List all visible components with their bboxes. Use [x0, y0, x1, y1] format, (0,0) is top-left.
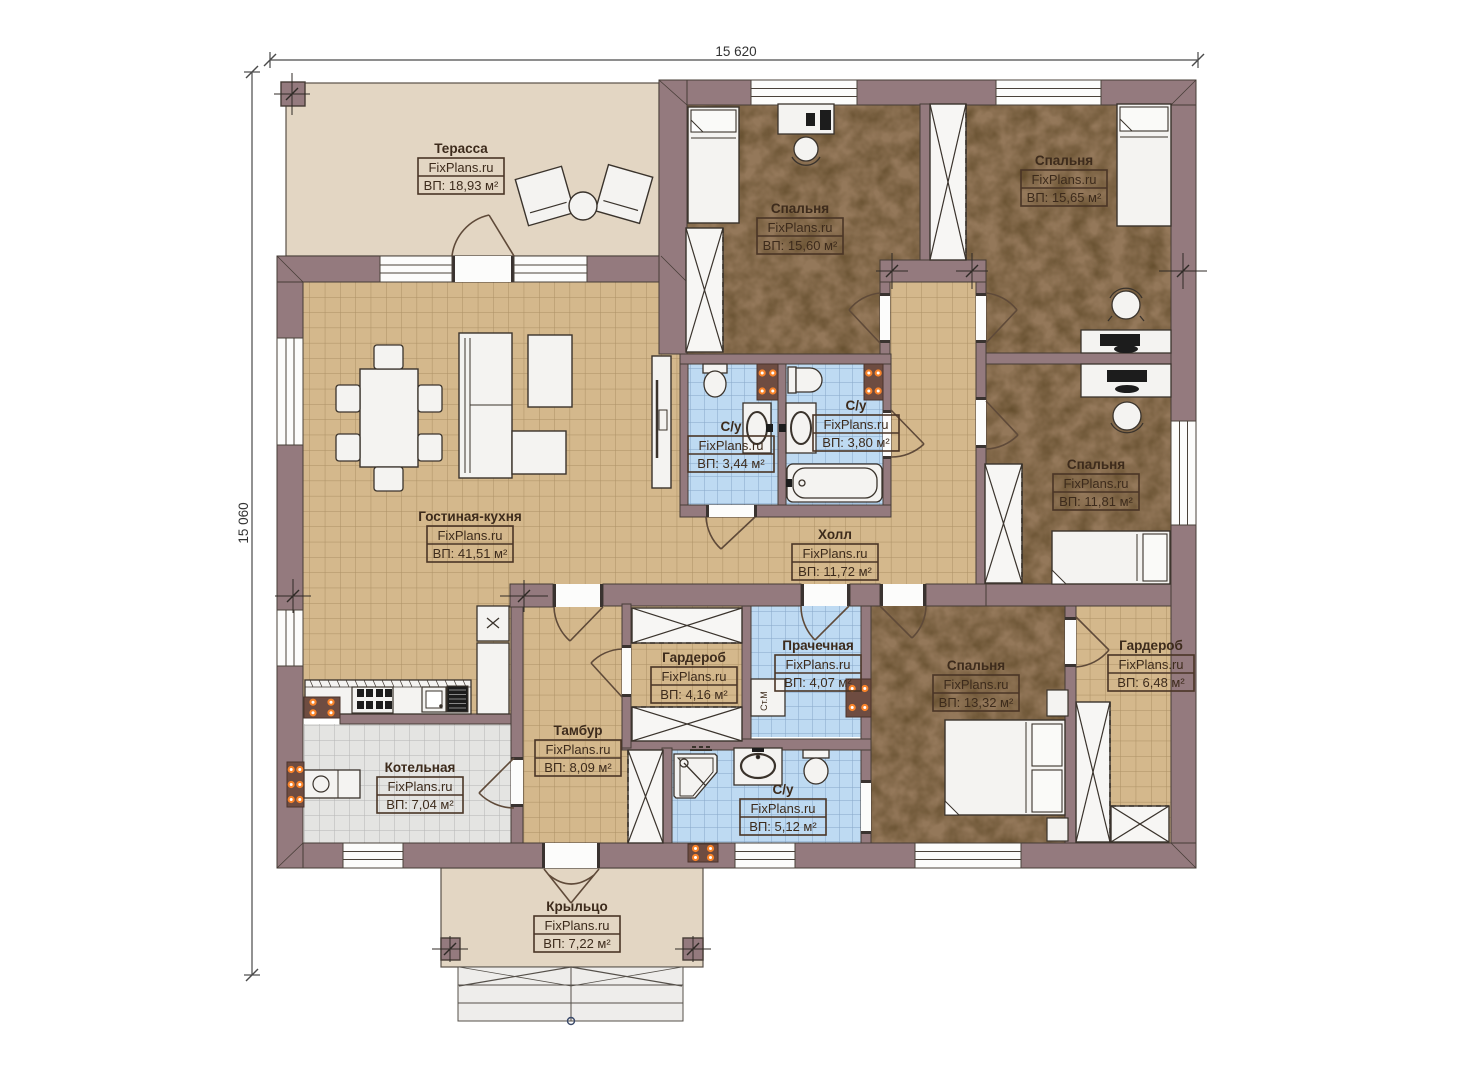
svg-text:ВП: 3,80 м²: ВП: 3,80 м² — [822, 435, 890, 450]
svg-text:ВП: 4,16 м²: ВП: 4,16 м² — [660, 687, 728, 702]
svg-text:FixPlans.ru: FixPlans.ru — [545, 742, 610, 757]
svg-text:FixPlans.ru: FixPlans.ru — [428, 160, 493, 175]
svg-text:ВП: 8,09 м²: ВП: 8,09 м² — [544, 760, 612, 775]
svg-text:Холл: Холл — [818, 527, 852, 542]
svg-text:ВП: 11,72 м²: ВП: 11,72 м² — [798, 564, 872, 579]
svg-text:FixPlans.ru: FixPlans.ru — [785, 657, 850, 672]
svg-text:FixPlans.ru: FixPlans.ru — [437, 528, 502, 543]
svg-text:ВП: 41,51 м²: ВП: 41,51 м² — [433, 546, 508, 561]
svg-text:15 620: 15 620 — [715, 44, 756, 59]
svg-text:ВП: 13,32 м²: ВП: 13,32 м² — [939, 695, 1014, 710]
svg-text:Крыльцо: Крыльцо — [546, 899, 607, 914]
svg-text:ВП: 4,07 м²: ВП: 4,07 м² — [784, 675, 852, 690]
svg-text:FixPlans.ru: FixPlans.ru — [698, 438, 763, 453]
svg-text:FixPlans.ru: FixPlans.ru — [387, 779, 452, 794]
svg-text:ВП: 11,81 м²: ВП: 11,81 м² — [1059, 494, 1133, 509]
svg-text:ВП: 15,65 м²: ВП: 15,65 м² — [1027, 190, 1102, 205]
svg-text:Тамбур: Тамбур — [554, 723, 603, 738]
svg-text:FixPlans.ru: FixPlans.ru — [823, 417, 888, 432]
svg-text:ВП: 6,48 м²: ВП: 6,48 м² — [1117, 675, 1185, 690]
svg-text:FixPlans.ru: FixPlans.ru — [1031, 172, 1096, 187]
svg-text:FixPlans.ru: FixPlans.ru — [544, 918, 609, 933]
svg-text:Прачечная: Прачечная — [782, 638, 854, 653]
svg-text:Ст.М: Ст.М — [759, 691, 769, 711]
svg-text:Спальня: Спальня — [1035, 153, 1093, 168]
svg-text:FixPlans.ru: FixPlans.ru — [661, 669, 726, 684]
svg-text:FixPlans.ru: FixPlans.ru — [943, 677, 1008, 692]
svg-text:Гостиная-кухня: Гостиная-кухня — [418, 509, 521, 524]
svg-text:FixPlans.ru: FixPlans.ru — [802, 546, 867, 561]
svg-text:ВП: 18,93 м²: ВП: 18,93 м² — [424, 178, 499, 193]
svg-text:Спальня: Спальня — [771, 201, 829, 216]
svg-text:Котельная: Котельная — [385, 760, 456, 775]
svg-text:15 060: 15 060 — [236, 502, 251, 543]
svg-text:ВП: 7,22 м²: ВП: 7,22 м² — [543, 936, 611, 951]
svg-text:FixPlans.ru: FixPlans.ru — [750, 801, 815, 816]
svg-text:С/у: С/у — [772, 782, 794, 797]
svg-text:Спальня: Спальня — [1067, 457, 1125, 472]
svg-text:FixPlans.ru: FixPlans.ru — [1118, 657, 1183, 672]
svg-text:ВП: 3,44 м²: ВП: 3,44 м² — [697, 456, 765, 471]
svg-text:FixPlans.ru: FixPlans.ru — [767, 220, 832, 235]
svg-text:ВП: 15,60 м²: ВП: 15,60 м² — [763, 238, 838, 253]
svg-text:FixPlans.ru: FixPlans.ru — [1063, 476, 1128, 491]
svg-text:ВП: 5,12 м²: ВП: 5,12 м² — [749, 819, 817, 834]
svg-text:ВП: 7,04 м²: ВП: 7,04 м² — [386, 797, 454, 812]
svg-text:С/у: С/у — [720, 419, 742, 434]
svg-text:Гардероб: Гардероб — [662, 650, 726, 665]
svg-text:Спальня: Спальня — [947, 658, 1005, 673]
svg-text:Гардероб: Гардероб — [1119, 638, 1183, 653]
svg-text:С/у: С/у — [845, 398, 867, 413]
svg-text:Терасса: Терасса — [434, 141, 488, 156]
